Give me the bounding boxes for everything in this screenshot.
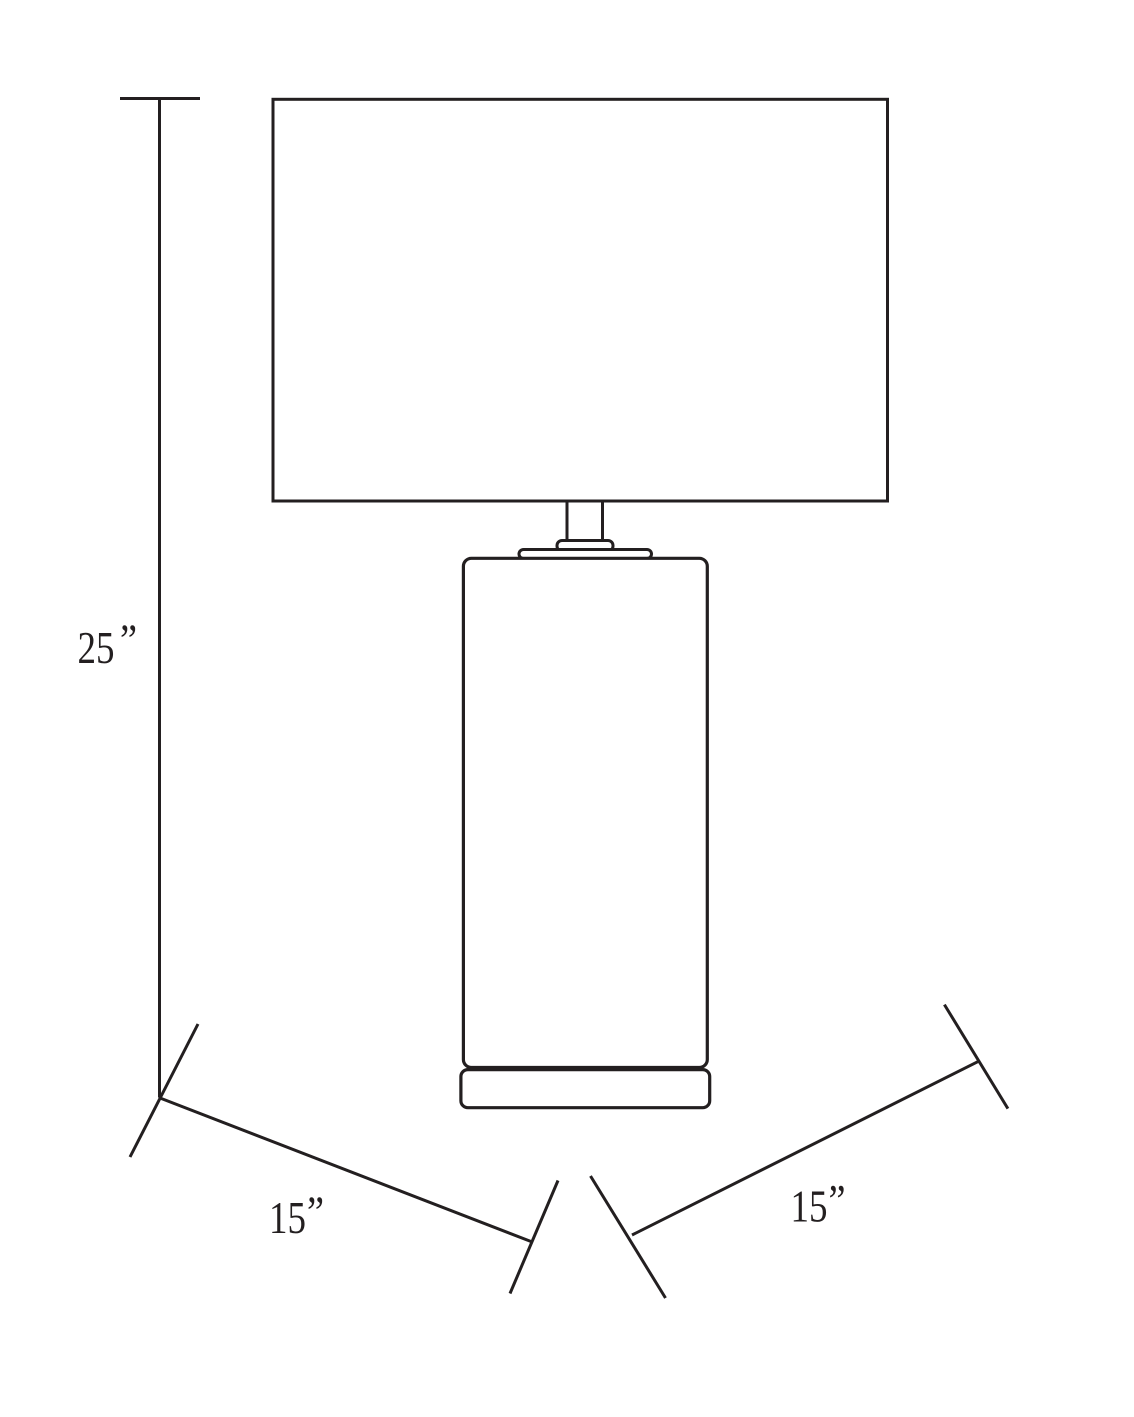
svg-text:”: ” — [829, 1175, 846, 1226]
svg-text:”: ” — [120, 615, 137, 666]
svg-text:15: 15 — [269, 1192, 306, 1243]
svg-text:25: 25 — [78, 622, 115, 673]
svg-text:”: ” — [307, 1187, 324, 1238]
svg-text:15: 15 — [791, 1181, 828, 1232]
